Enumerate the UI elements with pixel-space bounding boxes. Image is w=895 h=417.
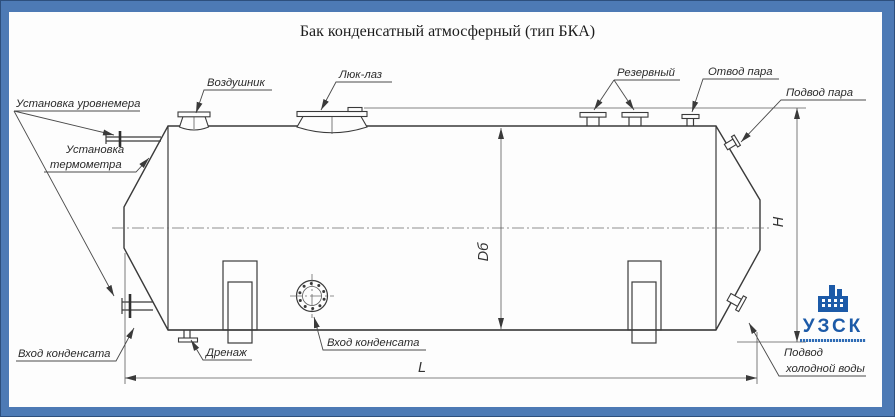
steam-supply-label: Подвод пара bbox=[786, 87, 853, 99]
reserve-label: Резервный bbox=[617, 67, 676, 79]
condensate-inlet-left-nozzle bbox=[122, 294, 153, 318]
level-gauge-label: Установка уровнемера bbox=[15, 98, 140, 110]
callout-level-gauge: Установка уровнемера bbox=[14, 98, 140, 296]
callout-condensate-inlet-left: Вход конденсата bbox=[16, 328, 134, 361]
air-vent-label: Воздушник bbox=[207, 77, 265, 89]
factory-icon bbox=[814, 284, 852, 312]
drain-label: Дренаж bbox=[204, 347, 248, 359]
drawing-title: Бак конденсатный атмосферный (тип БКА) bbox=[0, 23, 895, 41]
steam-outlet-label: Отвод пара bbox=[708, 66, 773, 78]
logo-tagline bbox=[800, 339, 866, 342]
air-vent-nozzle bbox=[178, 112, 210, 130]
callout-manhole: Люк-лаз bbox=[321, 69, 392, 110]
cold-water-label-1: Подвод bbox=[784, 347, 823, 359]
logo-text: УЗСК bbox=[796, 317, 870, 337]
uzsk-logo: УЗСК bbox=[796, 284, 870, 342]
callout-thermometer: Установка термометра bbox=[44, 144, 149, 172]
drawing-canvas: Бак конденсатный атмосферный (тип БКА) bbox=[0, 0, 895, 417]
manhole-label: Люк-лаз bbox=[338, 69, 382, 81]
steam-outlet-nozzle bbox=[682, 115, 699, 127]
length-label: L bbox=[418, 360, 426, 376]
drain-nozzle bbox=[179, 330, 198, 342]
callout-reserve: Резервный bbox=[594, 67, 680, 110]
thermometer-label-1: Установка bbox=[65, 144, 124, 156]
reserve-nozzle-2 bbox=[622, 113, 648, 127]
callout-steam-outlet: Отвод пара bbox=[692, 66, 779, 112]
callout-steam-supply: Подвод пара bbox=[741, 87, 866, 142]
height-label: H bbox=[771, 216, 787, 227]
thermometer-label-2: термометра bbox=[50, 159, 122, 171]
reserve-nozzle-1 bbox=[580, 113, 606, 127]
tank-drawing: Dб bbox=[0, 0, 895, 417]
condensate-inlet-center-label: Вход конденсата bbox=[327, 337, 419, 349]
manhole-nozzle bbox=[297, 108, 367, 135]
cold-water-label-2: холодной воды bbox=[785, 363, 866, 375]
condensate-inlet-left-label: Вход конденсата bbox=[18, 348, 110, 360]
callout-air-vent: Воздушник bbox=[196, 77, 272, 113]
diameter-label: Dб bbox=[476, 242, 492, 261]
